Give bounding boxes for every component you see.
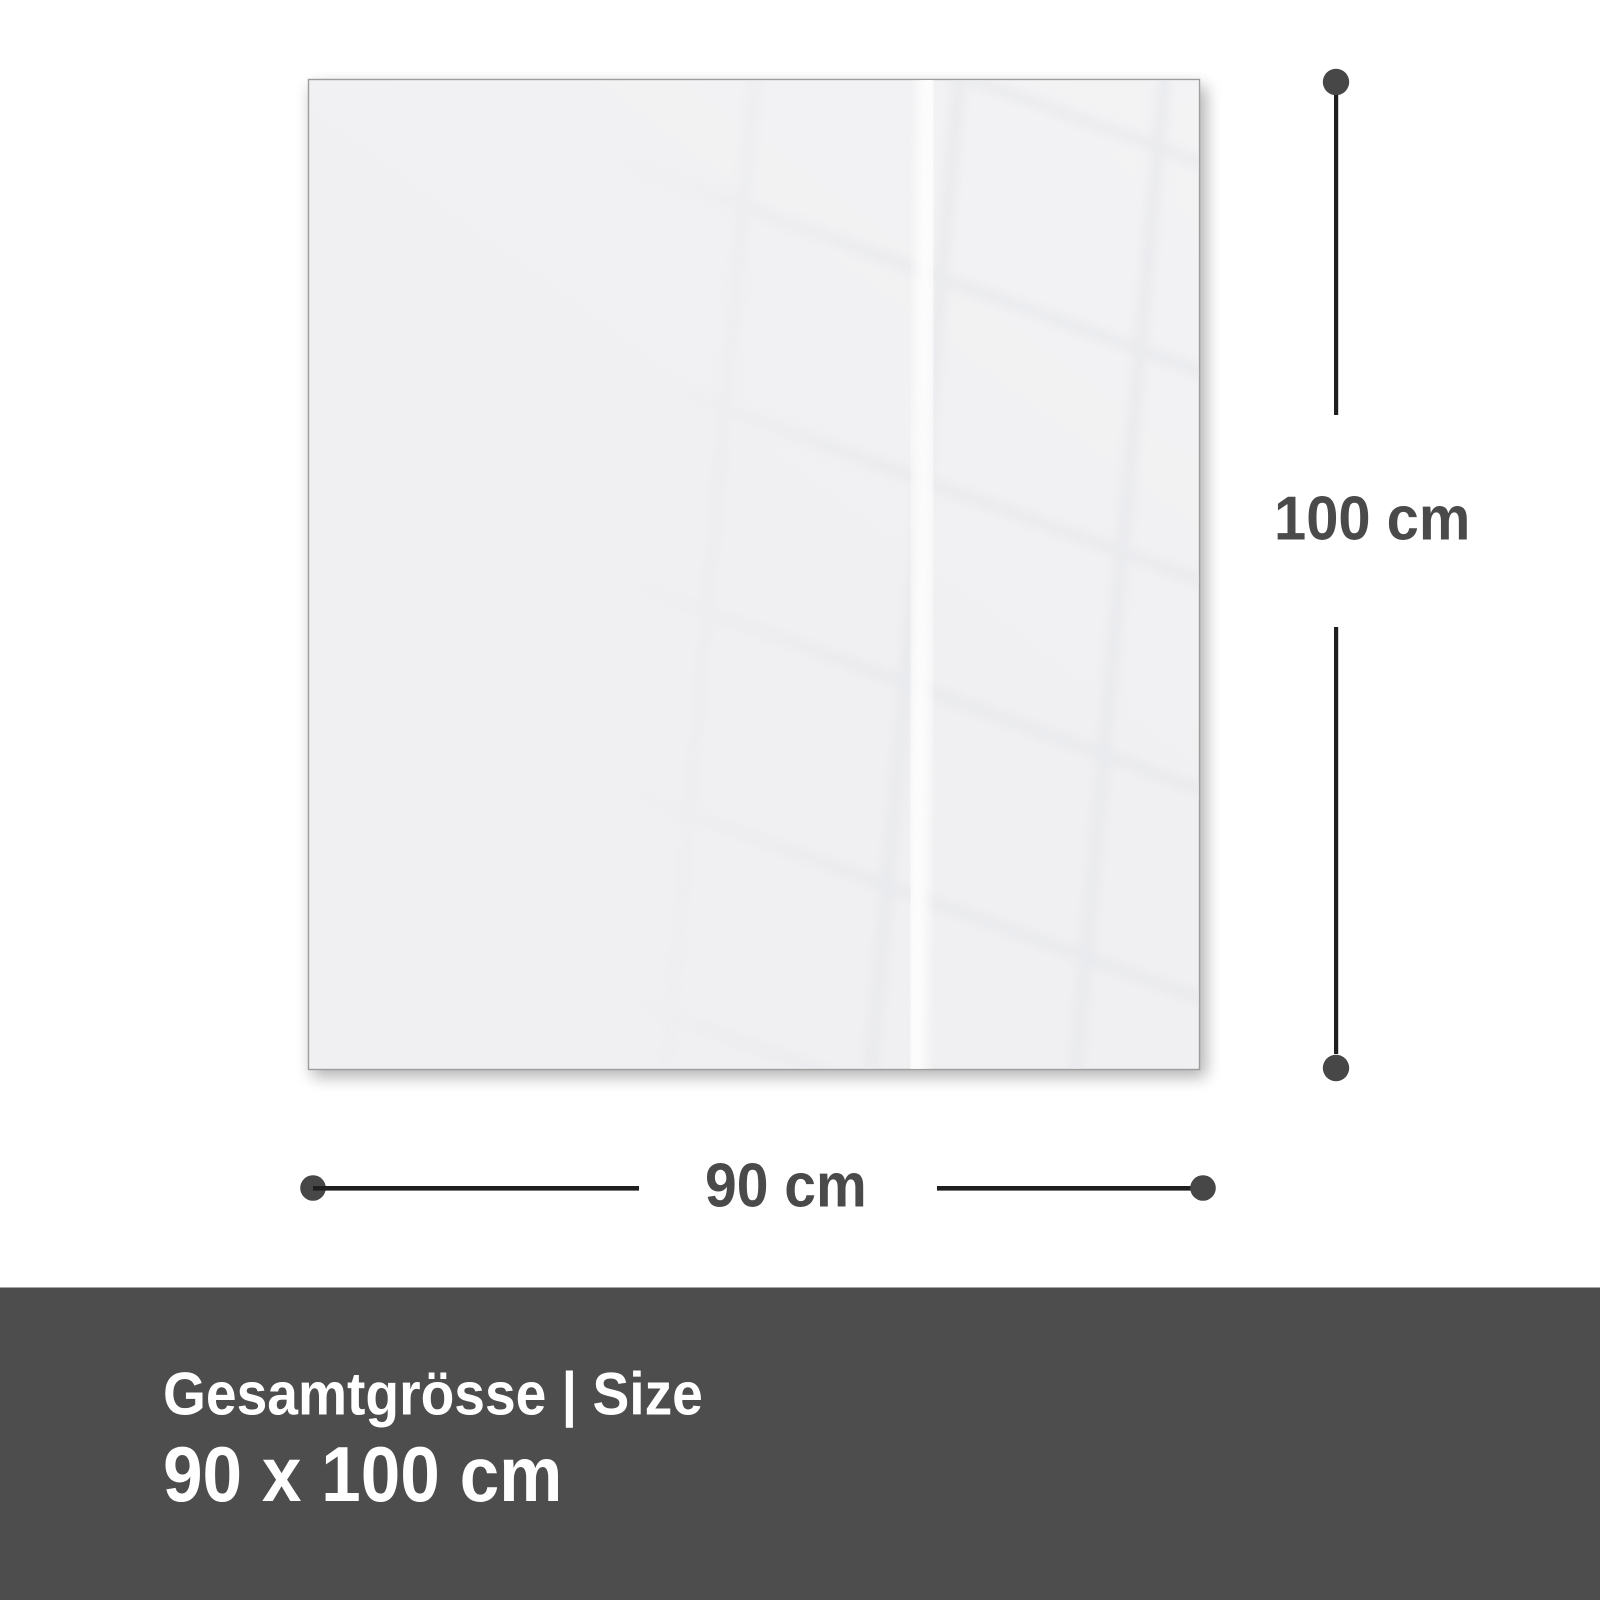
svg-text:90 x 100 cm: 90 x 100 cm bbox=[163, 1430, 562, 1518]
svg-text:Gesamtgrösse | Size: Gesamtgrösse | Size bbox=[163, 1361, 703, 1428]
svg-text:90 cm: 90 cm bbox=[705, 1150, 867, 1220]
svg-text:100 cm: 100 cm bbox=[1274, 484, 1470, 553]
